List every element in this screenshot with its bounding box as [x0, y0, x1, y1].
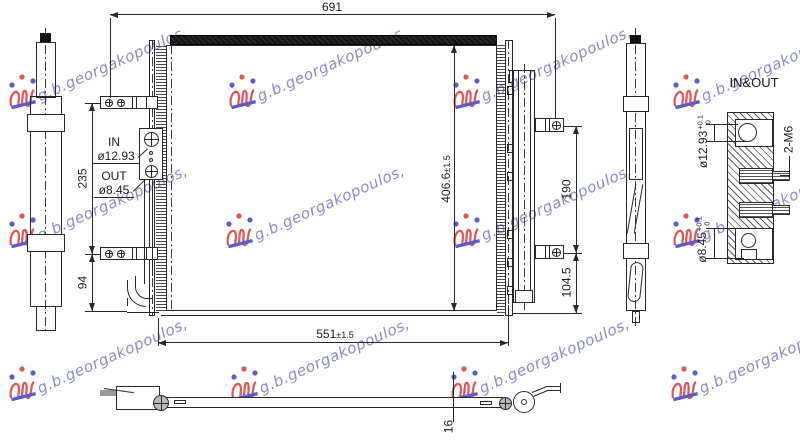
- dim-arrow: [500, 340, 508, 346]
- bracket-divider: [136, 96, 137, 109]
- leader-line: [706, 228, 738, 229]
- leader-line: [780, 175, 790, 176]
- slot: [174, 400, 186, 404]
- leader-line: [706, 141, 748, 142]
- dim-line-height: [454, 45, 455, 311]
- dim-left-upper: 235: [77, 164, 90, 194]
- clamp-band: [27, 114, 65, 132]
- dim-line-right-lower: [576, 253, 577, 313]
- drawing-layer: IN ø12.93 OUT ø8.45 691 551±1.5 406: [0, 0, 800, 443]
- dim-arrow: [547, 12, 555, 18]
- bracket-divider: [132, 96, 133, 109]
- dim-value: 406.6: [439, 173, 453, 203]
- bracket-divider: [146, 247, 147, 260]
- dim-tick: [714, 124, 715, 141]
- dim-arrow: [158, 340, 166, 346]
- dim-height: 406.6±1.5: [440, 145, 454, 213]
- slot: [480, 401, 492, 405]
- pipe-line: [547, 386, 560, 387]
- right-fin-edge: [497, 45, 505, 313]
- extension-line: [85, 103, 100, 104]
- dim-width-bottom: 551±1.5: [305, 328, 365, 342]
- detail-bolt-spec: 2-M6: [783, 120, 796, 160]
- dim-line-right-upper: [576, 126, 577, 253]
- port-in-label: IN: [103, 136, 125, 149]
- dim-left-lower: 94: [77, 271, 90, 295]
- port-out-circle: [741, 233, 756, 248]
- port-in-circle: [738, 123, 757, 142]
- pipe-line: [144, 180, 145, 284]
- bracket-divider: [545, 118, 546, 132]
- tolerance-lower: 0: [704, 115, 712, 130]
- bottom-plate-line: [161, 315, 504, 316]
- pipe-end-tick: [560, 383, 561, 393]
- pipe-line: [152, 180, 153, 276]
- dim-arrow: [89, 246, 95, 254]
- bolt-hole: [117, 99, 125, 107]
- port-in: [144, 132, 159, 147]
- dim-line-left-upper: [92, 103, 93, 254]
- leader-line: [706, 124, 738, 125]
- leader-line: [706, 258, 744, 259]
- dim-right-lower: 104.5: [561, 261, 574, 305]
- bolt-hole: [552, 121, 561, 130]
- rail-tab: [507, 258, 514, 267]
- rail-tab: [507, 86, 514, 95]
- dim-arrow: [573, 253, 579, 261]
- dim-arrow: [573, 245, 579, 253]
- extension-line: [85, 311, 127, 312]
- clamp-band: [27, 234, 65, 252]
- bolt-hole: [552, 248, 561, 257]
- screw-hole: [149, 151, 153, 155]
- dim-arrow: [573, 126, 579, 134]
- detail-dim-port-out: ø8.45+0.10: [696, 209, 711, 271]
- fitting-bolt: [153, 395, 169, 411]
- rail-tab: [507, 144, 514, 153]
- drier-top-notch: [509, 70, 514, 83]
- screw-hole: [149, 158, 153, 162]
- detail-title: IN&OUT: [722, 76, 786, 89]
- pipe-end-cap: [127, 298, 128, 306]
- bottom-tip: [632, 311, 640, 323]
- drier-inner-line: [530, 71, 531, 302]
- dim-arrow: [451, 45, 457, 53]
- clamp-band: [623, 243, 649, 259]
- extension-line: [513, 313, 582, 314]
- pipe-reference-line: [127, 312, 159, 313]
- extension-line: [508, 305, 509, 346]
- cap: [630, 35, 641, 43]
- dim-arrow: [89, 303, 95, 311]
- stud-m6: [739, 168, 773, 184]
- drier-inner-line: [518, 71, 519, 302]
- dim-value: 551: [316, 327, 336, 341]
- bracket-divider: [545, 245, 546, 259]
- bracket-divider: [549, 118, 550, 132]
- dim-tolerance: ±1.5: [336, 330, 353, 340]
- fitting-center-hole: [521, 399, 527, 405]
- lower-tube: [36, 306, 56, 331]
- cap: [40, 33, 51, 42]
- left-tube-centerline: [171, 45, 172, 311]
- bolt-hole: [105, 99, 113, 107]
- dim-right-upper: 190: [561, 175, 574, 205]
- dim-thickness: 16: [443, 415, 456, 439]
- pipe-elbow: [135, 276, 153, 299]
- leader-line: [789, 156, 790, 175]
- rail-tab: [507, 230, 514, 239]
- rail-tab: [507, 172, 514, 181]
- rail-tab: [507, 286, 514, 295]
- bracket-divider: [146, 96, 147, 109]
- top-header-bar: [170, 35, 497, 45]
- bolt-hole: [105, 250, 113, 258]
- stud-m6-tip: [772, 171, 790, 181]
- bracket-divider: [132, 247, 133, 260]
- dim-arrow: [451, 303, 457, 311]
- bracket-divider: [549, 245, 550, 259]
- pipe-line: [547, 390, 560, 391]
- extension-line: [555, 18, 556, 118]
- extension-line: [110, 18, 111, 98]
- slot: [629, 128, 643, 180]
- clamp-band: [623, 96, 649, 112]
- dim-line-width-top: [110, 14, 555, 15]
- port-out: [145, 165, 158, 178]
- dim-arrow: [89, 254, 95, 262]
- bolt-hole: [117, 250, 125, 258]
- dim-line-width-bottom: [158, 342, 508, 343]
- dim-arrow: [89, 103, 95, 111]
- stud-m6-tip: [772, 205, 790, 215]
- dim-tick: [714, 228, 715, 258]
- port-out-diameter: ø8.45: [94, 184, 134, 198]
- port-in-diameter: ø12.93: [92, 150, 140, 164]
- extension-line: [158, 318, 159, 346]
- extension-line: [564, 126, 582, 127]
- drier-foot: [515, 290, 533, 303]
- dim-arrow: [573, 305, 579, 313]
- upper-tube: [36, 42, 56, 98]
- dim-width-top: 691: [312, 1, 352, 14]
- fitting-bolt: [499, 397, 512, 410]
- condenser-top-profile: [157, 397, 503, 408]
- dim-arrow: [110, 12, 118, 18]
- dim-tolerance: ±1.5: [442, 155, 452, 172]
- technical-drawing-condenser: g.b.georgakopoulos, g.b.georgakopoulos, …: [0, 0, 800, 443]
- drier-centerline: [524, 64, 525, 310]
- stud-m6: [739, 202, 773, 218]
- port-out-label: OUT: [97, 170, 131, 183]
- dim-value: ø12.93: [696, 131, 710, 168]
- bracket-divider: [136, 247, 137, 260]
